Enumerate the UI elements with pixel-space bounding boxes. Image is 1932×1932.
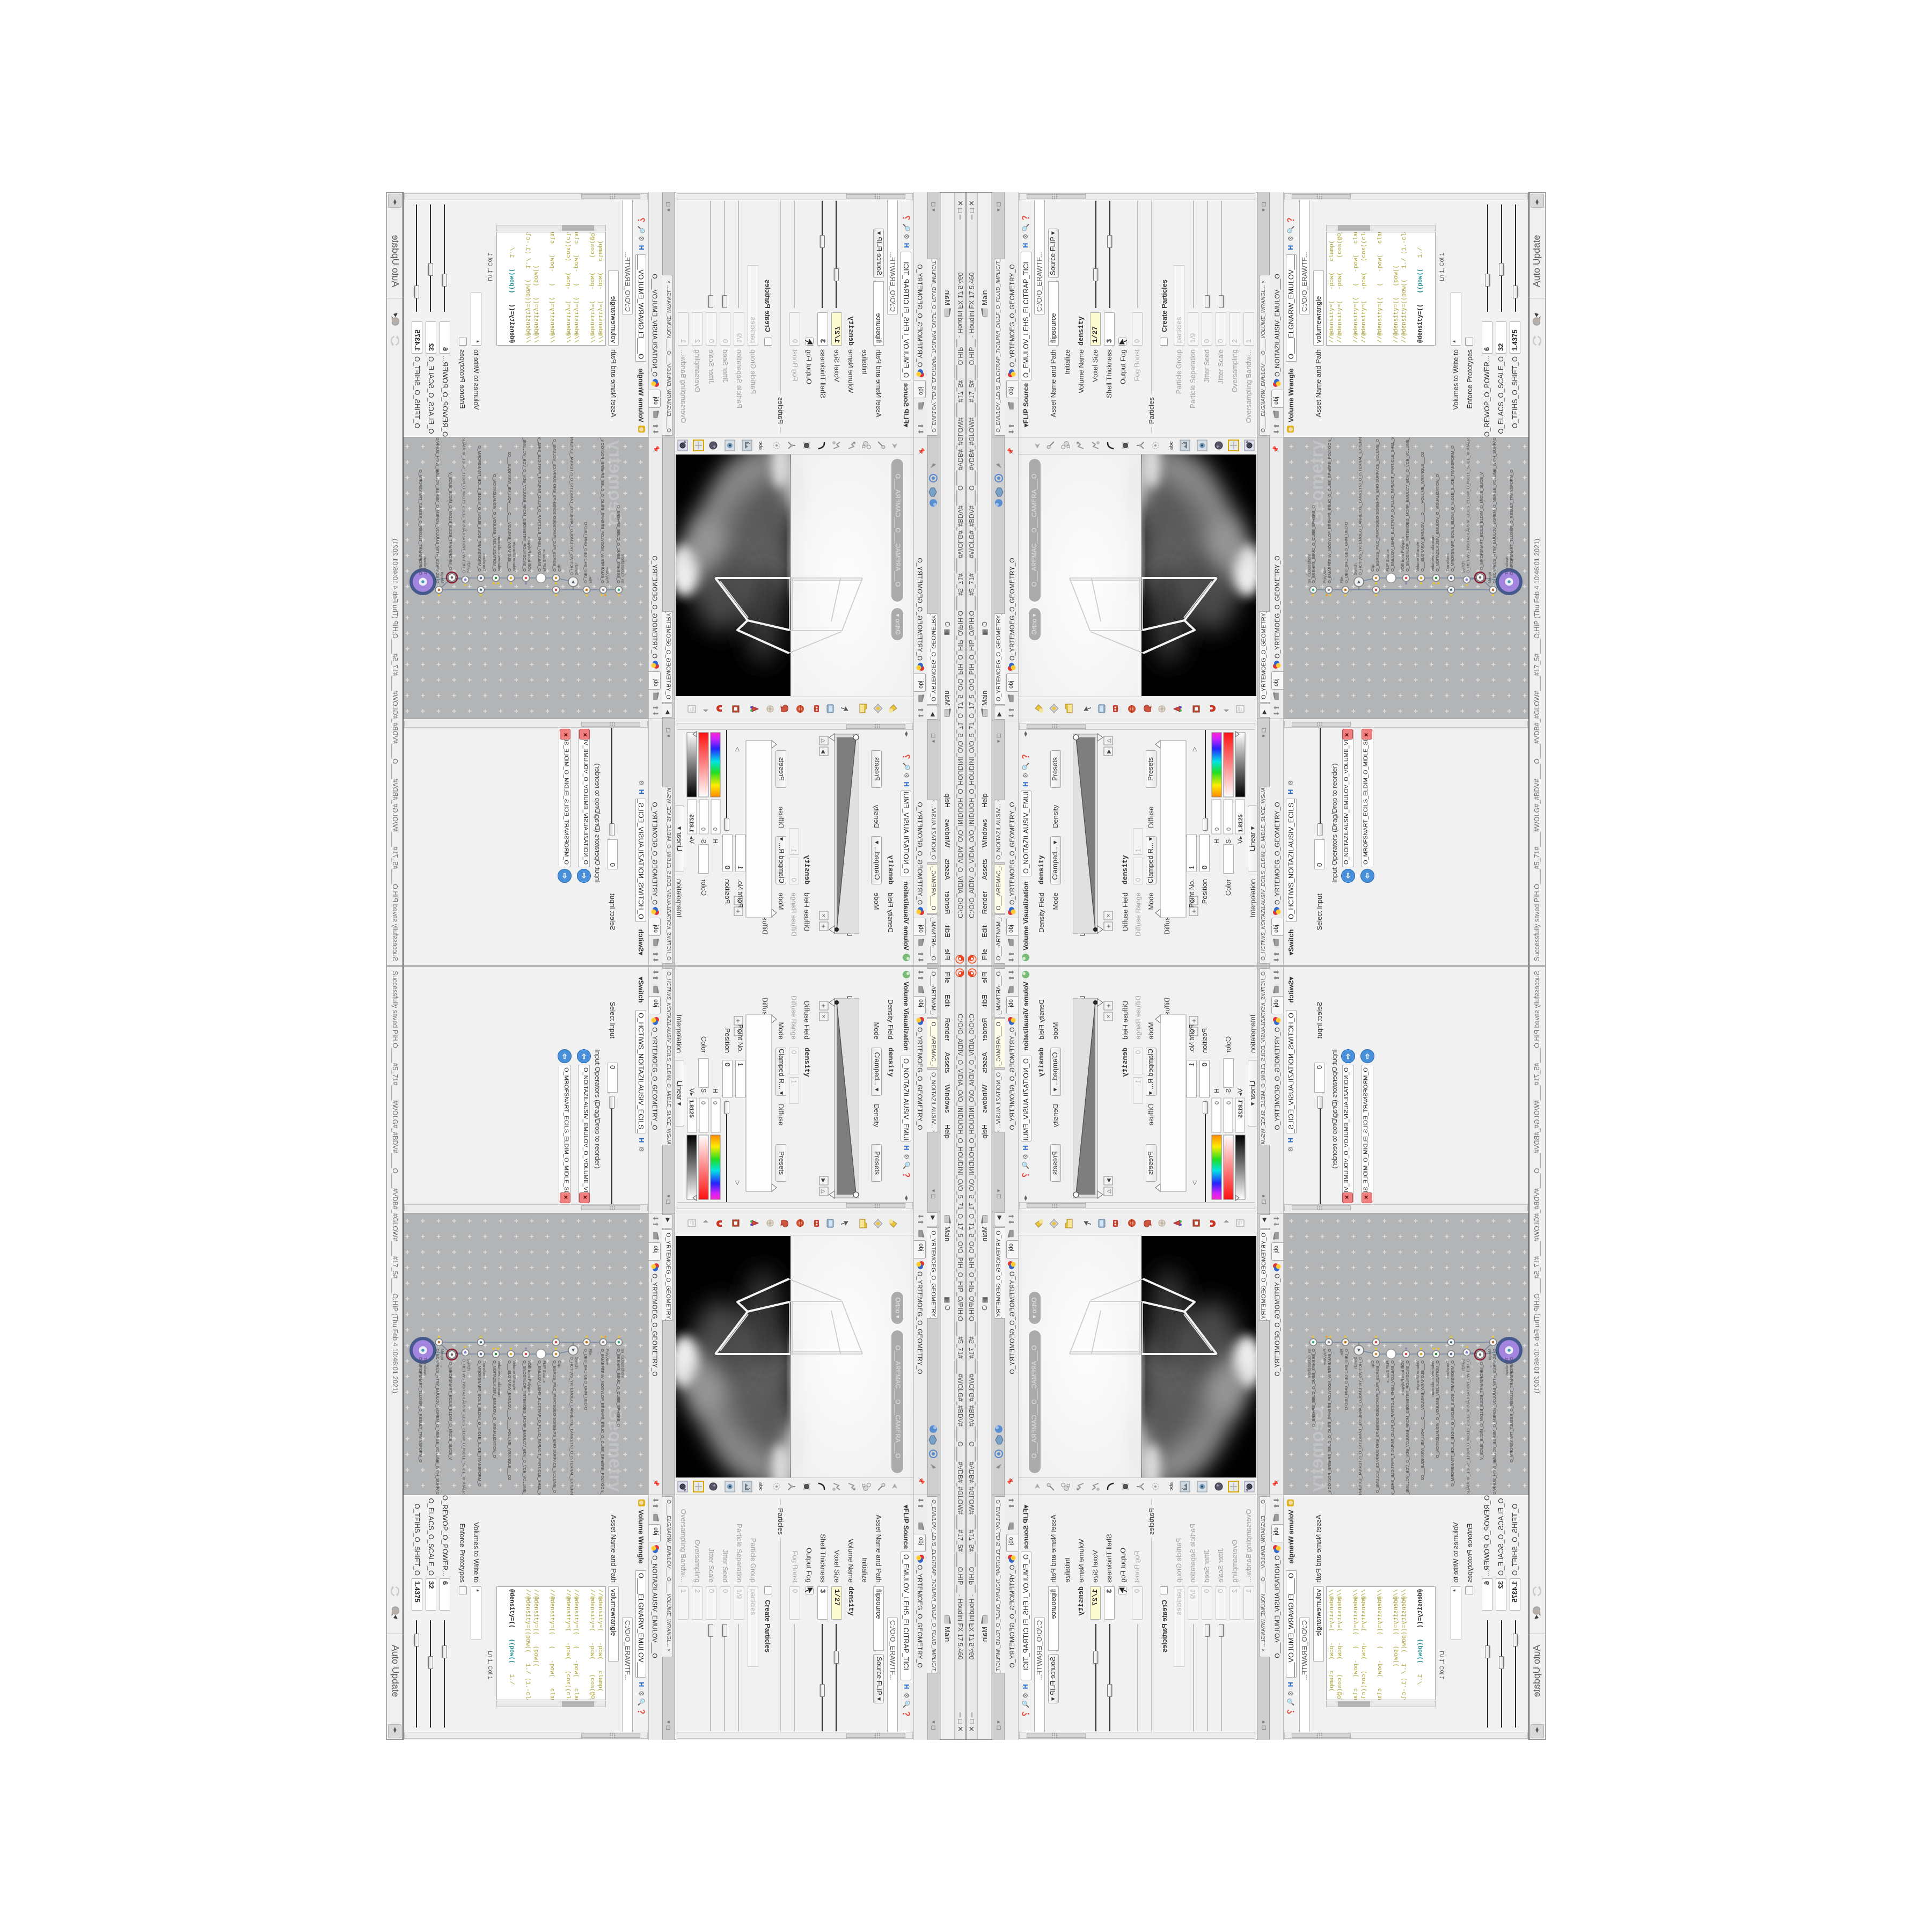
svg-text:S: S [1225,1088,1232,1093]
svg-text:V▸: V▸ [688,1088,696,1096]
svg-text:O_EMARFERIW_NOGYLOP_EREHPS_EBU: O_EMARFERIW_NOGYLOP_EREHPS_EBUC_O_CUBE_S… [1327,1349,1332,1495]
svg-text:O_NOITAZILAUSIV_EMULOV_O_VISUA: O_NOITAZILAUSIV_EMULOV_O_VISUALIZATION_O [1435,1360,1440,1458]
svg-text:12: 12 [861,444,865,449]
svg-text:O_EGRUS_PILC_PMATSGEO·SOREHPS_: O_EGRUS_PILC_PMATSGEO·SOREHPS_ENO·SURFAC… [552,439,557,572]
svg-text:O_HCTIWS_YRTEMOEG_LANRETXE_LAN: O_HCTIWS_YRTEMOEG_LANRETXE_LANRETNI_O_IN… [1358,437,1363,575]
svg-text:△: △ [1106,1189,1112,1194]
svg-text:Geometry: Geometry [605,440,625,525]
svg-text:O_HCTIWS_NOITAZILAUSIV_ECILS_E: O_HCTIWS_NOITAZILAUSIV_ECILS_ELDIM_O_MID… [1466,1359,1470,1495]
svg-text:O_HCTIWS_YRTEMOEG_LANRETXE_LAN: O_HCTIWS_YRTEMOEG_LANRETXE_LANRETNI_O_IN… [569,437,574,575]
svg-text:Switch: Switch [1353,563,1358,575]
svg-text:+: + [819,924,828,928]
svg-text:0: 0 [1226,1101,1232,1104]
svg-text:O_MROFSNART_ECILS_ELDIM_O_MIDL: O_MROFSNART_ECILS_ELDIM_O_MIDLE_SLICE_TR… [477,445,482,572]
svg-text:▶: ▶ [1106,1179,1112,1183]
svg-text:Volume Wrangle: Volume Wrangle [1415,542,1420,572]
svg-text:O_EMULOV_LEHS_ELCITRAP_O_FLUID: O_EMULOV_LEHS_ELCITRAP_O_FLUID_IMPLICIT_… [537,1360,542,1495]
svg-text:O___ELGNARW_EMULOV___O____VOLU: O___ELGNARW_EMULOV___O____VOLUME_WRANGLE… [1420,452,1425,572]
svg-text:0: 0 [712,828,718,831]
svg-text:O_MROFSNART_ECILS_ELDIM_O_MIDL: O_MROFSNART_ECILS_ELDIM_O_MIDLE_SLICE_V [1479,472,1484,570]
svg-text:▶: ▶ [820,1179,826,1183]
svg-text:FLIP Source: FLIP Source [1385,549,1390,572]
svg-text:PolyWire: PolyWire [605,567,610,583]
svg-text:0: 0 [700,1101,706,1104]
svg-text:PolyWire: PolyWire [605,1349,610,1365]
svg-text:▷: ▷ [734,747,741,751]
svg-text:Geometry: Geometry [605,1407,625,1492]
svg-text:PolyWire: PolyWire [1322,567,1327,583]
svg-text:H: H [712,839,719,844]
svg-text:V▸: V▸ [1236,1088,1244,1096]
svg-text:Volume Wrangle: Volume Wrangle [512,1360,517,1390]
svg-text:O_HCTIWS_YRTEMOEG_LANRETXE_LAN: O_HCTIWS_YRTEMOEG_LANRETXE_LANRETNI_O_IN… [569,1357,574,1495]
svg-text:▶: ▶ [1106,749,1112,753]
svg-text:File: File [1339,1349,1344,1355]
svg-text:VolumeVisualization: VolumeVisualization [497,536,502,572]
svg-text:1.8125: 1.8125 [688,814,694,832]
svg-text:an_CubeSphere: an_CubeSphere [620,554,625,583]
svg-text:Merge: Merge [1487,572,1492,583]
svg-text:VolumeVisualization: VolumeVisualization [497,1360,502,1396]
svg-text:▷: ▷ [1191,747,1198,751]
svg-text:File: File [1339,577,1344,583]
svg-text:O_MROFSNART_TLUSER_O_RESULT_TR: O_MROFSNART_TLUSER_O_RESULT_TRANSFORM_O [1509,1357,1514,1462]
svg-text:H: H [1213,839,1220,844]
svg-text:S: S [1225,839,1232,844]
svg-text:Geometry: Geometry [1307,440,1327,525]
svg-text:O_DBU_BRO·GEO_GRN_UBD·O: O_DBU_BRO·GEO_GRN_UBD·O [1344,1349,1349,1410]
svg-text:Switch: Switch [574,1357,579,1368]
svg-text:O_EMARFERIW_NOGYLOP_EREHPS_EBU: O_EMARFERIW_NOGYLOP_EREHPS_EBUC_O_CUBE_S… [600,1349,605,1495]
svg-text:O_EMULOV_LEHS_ELCITRAP_O_FLUID: O_EMULOV_LEHS_ELCITRAP_O_FLUID_IMPLICIT_… [1390,437,1395,572]
svg-text:V▸: V▸ [1236,836,1244,844]
svg-text:O_EGRUS_PILC_PMATSGEO·SOREHPS_: O_EGRUS_PILC_PMATSGEO·SOREHPS_ENO·SURFAC… [1375,439,1380,572]
svg-text:O___ELGNARW_EMULOV___O____VOLU: O___ELGNARW_EMULOV___O____VOLUME_WRANGLE… [507,1360,512,1480]
svg-text:×: × [820,1015,826,1018]
svg-text:O_ECAFRUS_HTIW_EMULOV_EGREM_O_: O_ECAFRUS_HTIW_EMULOV_EGREM_O_MERGE_VOLU… [435,1349,440,1495]
svg-text:O_EREHPS_EBUC_O_CUBE_SPHERE_O: O_EREHPS_EBUC_O_CUBE_SPHERE_O [616,505,621,583]
svg-text:+: + [1104,1004,1113,1008]
svg-text:12: 12 [1067,444,1071,449]
svg-text:Clip: Clip [1370,1360,1375,1367]
svg-text:O_ECAFRUS_HTIW_EMULOV_EGREM_O_: O_ECAFRUS_HTIW_EMULOV_EGREM_O_MERGE_VOLU… [435,437,440,583]
svg-text:1.8125: 1.8125 [1238,1100,1244,1118]
svg-text:O_NOITAZILAUSIV_EMULOV_O_VISUA: O_NOITAZILAUSIV_EMULOV_O_VISUALIZATION_O [492,474,497,572]
svg-text:O_MROFSNART_ECILS_ELDIM_O_MIDL: O_MROFSNART_ECILS_ELDIM_O_MIDLE_SLICE_V [448,1362,453,1460]
svg-text:0: 0 [712,1101,718,1104]
svg-text:Switch: Switch [1461,561,1466,573]
svg-text:×: × [1106,1015,1112,1018]
svg-text:▷: ▷ [1191,1181,1198,1185]
svg-text:O_MROFSNART_ECILS_ELDIM_O_MIDL: O_MROFSNART_ECILS_ELDIM_O_MIDLE_SLICE_V [1479,1362,1484,1460]
svg-text:O_MROFSNART_ECILS_ELDIM_O_MIDL: O_MROFSNART_ECILS_ELDIM_O_MIDLE_SLICE_V [448,472,453,570]
svg-text:O_EMULOV_LEHS_ELCITRAP_O_FLUID: O_EMULOV_LEHS_ELCITRAP_O_FLUID_IMPLICIT_… [537,437,542,572]
svg-text:O___ELGNARW_EMULOV___O____VOLU: O___ELGNARW_EMULOV___O____VOLUME_WRANGLE… [507,452,512,572]
svg-text:S: S [700,1088,707,1093]
svg-text:Transform: Transform [1504,1357,1509,1375]
svg-text:Transform: Transform [423,1357,428,1375]
svg-text:Geometry: Geometry [1307,1407,1327,1492]
svg-text:Transform: Transform [1504,557,1509,575]
svg-text:O_SNOGYLOP_YRTEMOEG_MORF_EMULO: O_SNOGYLOP_YRTEMOEG_MORF_EMULOV_BDV_O_VD… [522,437,527,572]
svg-text:△: △ [1106,738,1112,743]
svg-text:△: △ [820,1189,826,1194]
svg-text:O_SNOGYLOP_YRTEMOEG_MORF_EMULO: O_SNOGYLOP_YRTEMOEG_MORF_EMULOV_BDV_O_VD… [1405,437,1410,572]
svg-text:Merge: Merge [440,572,445,583]
svg-text:S: S [700,839,707,844]
svg-text:O_SNOGYLOP_YRTEMOEG_MORF_EMULO: O_SNOGYLOP_YRTEMOEG_MORF_EMULOV_BDV_O_VD… [1405,1360,1410,1495]
svg-text:abc: abc [758,441,764,450]
svg-text:O_NOITAZILAUSIV_EMULOV_O_VISUA: O_NOITAZILAUSIV_EMULOV_O_VISUALIZATION_O [1435,474,1440,572]
svg-text:1.8125: 1.8125 [1238,814,1244,832]
svg-text:Transform: Transform [482,1360,487,1379]
svg-text:1.8125: 1.8125 [688,1100,694,1118]
svg-text:FLIP Source: FLIP Source [542,1360,547,1383]
svg-text:O_DBU_BRO·GEO_GRN_UBD·O: O_DBU_BRO·GEO_GRN_UBD·O [583,522,588,583]
svg-text:H: H [1213,1088,1220,1093]
svg-text:abc: abc [1168,441,1174,450]
svg-text:12: 12 [861,1483,865,1488]
svg-text:PolyWire: PolyWire [1322,1349,1327,1365]
svg-text:Clip: Clip [557,565,562,572]
svg-text:O_MROFSNART_TLUSER_O_RESULT_TR: O_MROFSNART_TLUSER_O_RESULT_TRANSFORM_O [1509,470,1514,575]
svg-text:VolumeVisualization: VolumeVisualization [1430,1360,1435,1396]
svg-text:VDB from Polygons: VDB from Polygons [527,1360,532,1396]
svg-text:O_NOITAZILAUSIV_EMULOV_O_VISUA: O_NOITAZILAUSIV_EMULOV_O_VISUALIZATION_O [492,1360,497,1458]
svg-text:V▸: V▸ [688,836,696,844]
svg-text:VDB from Polygons: VDB from Polygons [1400,1360,1405,1396]
svg-text:O_EREHPS_EBUC_O_CUBE_SPHERE_O: O_EREHPS_EBUC_O_CUBE_SPHERE_O [1311,1349,1316,1427]
svg-text:VDB from Polygons: VDB from Polygons [1400,536,1405,572]
svg-text:▶: ▶ [820,749,826,753]
svg-text:abc: abc [758,1482,764,1491]
svg-text:O_EMULOV_LEHS_ELCITRAP_O_FLUID: O_EMULOV_LEHS_ELCITRAP_O_FLUID_IMPLICIT_… [1390,1360,1395,1495]
svg-text:O_MROFSNART_TLUSER_O_RESULT_TR: O_MROFSNART_TLUSER_O_RESULT_TRANSFORM_O [418,470,423,575]
svg-text:O_MROFSNART_ECILS_ELDIM_O_MIDL: O_MROFSNART_ECILS_ELDIM_O_MIDLE_SLICE_TR… [477,1360,482,1487]
svg-text:VDB from Polygons: VDB from Polygons [527,536,532,572]
svg-text:O_HCTIWS_YRTEMOEG_LANRETXE_LAN: O_HCTIWS_YRTEMOEG_LANRETXE_LANRETNI_O_IN… [1358,1357,1363,1495]
svg-text:VolumeVisualization: VolumeVisualization [1430,536,1435,572]
svg-text:0: 0 [1214,1101,1220,1104]
svg-text:O_ECAFRUS_HTIW_EMULOV_EGREM_O_: O_ECAFRUS_HTIW_EMULOV_EGREM_O_MERGE_VOLU… [1492,1349,1497,1495]
svg-text:H: H [712,1088,719,1093]
svg-text:O_EMARFERIW_NOGYLOP_EREHPS_EBU: O_EMARFERIW_NOGYLOP_EREHPS_EBUC_O_CUBE_S… [600,437,605,583]
svg-text:Switch: Switch [574,563,579,575]
svg-text:Merge: Merge [1487,1349,1492,1360]
svg-text:Clip: Clip [1370,565,1375,572]
svg-text:abc: abc [1168,1482,1174,1491]
svg-text:Volume Wrangle: Volume Wrangle [1415,1360,1420,1390]
svg-text:FLIP Source: FLIP Source [1385,1360,1390,1383]
svg-text:Volume Wrangle: Volume Wrangle [512,542,517,572]
svg-text:Transform: Transform [1445,1360,1450,1379]
svg-text:+: + [1104,924,1113,928]
svg-text:O_EGRUS_PILC_PMATSGEO·SOREHPS_: O_EGRUS_PILC_PMATSGEO·SOREHPS_ENO·SURFAC… [552,1360,557,1493]
svg-text:O_ECAFRUS_HTIW_EMULOV_EGREM_O_: O_ECAFRUS_HTIW_EMULOV_EGREM_O_MERGE_VOLU… [1492,437,1497,583]
svg-text:O_HCTIWS_NOITAZILAUSIV_ECILS_E: O_HCTIWS_NOITAZILAUSIV_ECILS_ELDIM_O_MID… [1466,437,1470,573]
svg-text:O_MROFSNART_ECILS_ELDIM_O_MIDL: O_MROFSNART_ECILS_ELDIM_O_MIDLE_SLICE_TR… [1450,1360,1455,1487]
svg-text:O_MROFSNART_TLUSER_O_RESULT_TR: O_MROFSNART_TLUSER_O_RESULT_TRANSFORM_O [418,1357,423,1462]
svg-text:+: + [819,1004,828,1008]
svg-text:O_DBU_BRO·GEO_GRN_UBD·O: O_DBU_BRO·GEO_GRN_UBD·O [583,1349,588,1410]
svg-text:Transform: Transform [482,553,487,572]
svg-text:FLIP Source: FLIP Source [542,549,547,572]
svg-text:an_CubeSphere: an_CubeSphere [620,1349,625,1378]
svg-text:File: File [588,577,593,583]
svg-text:12: 12 [1067,1483,1071,1488]
svg-text:O_EMARFERIW_NOGYLOP_EREHPS_EBU: O_EMARFERIW_NOGYLOP_EREHPS_EBUC_O_CUBE_S… [1327,437,1332,583]
svg-text:Transform: Transform [1445,553,1450,572]
svg-text:Clip: Clip [557,1360,562,1367]
svg-text:Switch: Switch [1353,1357,1358,1368]
svg-text:0: 0 [700,828,706,831]
svg-text:Merge: Merge [440,1349,445,1360]
svg-text:△: △ [820,738,826,743]
svg-text:O_DBU_BRO·GEO_GRN_UBD·O: O_DBU_BRO·GEO_GRN_UBD·O [1344,522,1349,583]
svg-text:×: × [1106,914,1112,917]
svg-text:File: File [588,1349,593,1355]
svg-text:O___ELGNARW_EMULOV___O____VOLU: O___ELGNARW_EMULOV___O____VOLUME_WRANGLE… [1420,1360,1425,1480]
svg-text:O_EGRUS_PILC_PMATSGEO·SOREHPS_: O_EGRUS_PILC_PMATSGEO·SOREHPS_ENO·SURFAC… [1375,1360,1380,1493]
svg-text:Switch: Switch [466,1359,471,1371]
svg-text:×: × [820,914,826,917]
svg-text:0: 0 [1226,828,1232,831]
svg-text:▷: ▷ [734,1181,741,1185]
svg-text:Switch: Switch [466,561,471,573]
svg-text:0: 0 [1214,828,1220,831]
svg-text:O_MROFSNART_ECILS_ELDIM_O_MIDL: O_MROFSNART_ECILS_ELDIM_O_MIDLE_SLICE_TR… [1450,445,1455,572]
svg-text:O_HCTIWS_NOITAZILAUSIV_ECILS_E: O_HCTIWS_NOITAZILAUSIV_ECILS_ELDIM_O_MID… [462,1359,466,1495]
svg-text:Transform: Transform [423,557,428,575]
svg-text:Switch: Switch [1461,1359,1466,1371]
svg-text:O_EREHPS_EBUC_O_CUBE_SPHERE_O: O_EREHPS_EBUC_O_CUBE_SPHERE_O [1311,505,1316,583]
svg-text:O_EREHPS_EBUC_O_CUBE_SPHERE_O: O_EREHPS_EBUC_O_CUBE_SPHERE_O [616,1349,621,1427]
svg-text:O_SNOGYLOP_YRTEMOEG_MORF_EMULO: O_SNOGYLOP_YRTEMOEG_MORF_EMULOV_BDV_O_VD… [522,1360,527,1495]
svg-text:O_HCTIWS_NOITAZILAUSIV_ECILS_E: O_HCTIWS_NOITAZILAUSIV_ECILS_ELDIM_O_MID… [462,437,466,573]
